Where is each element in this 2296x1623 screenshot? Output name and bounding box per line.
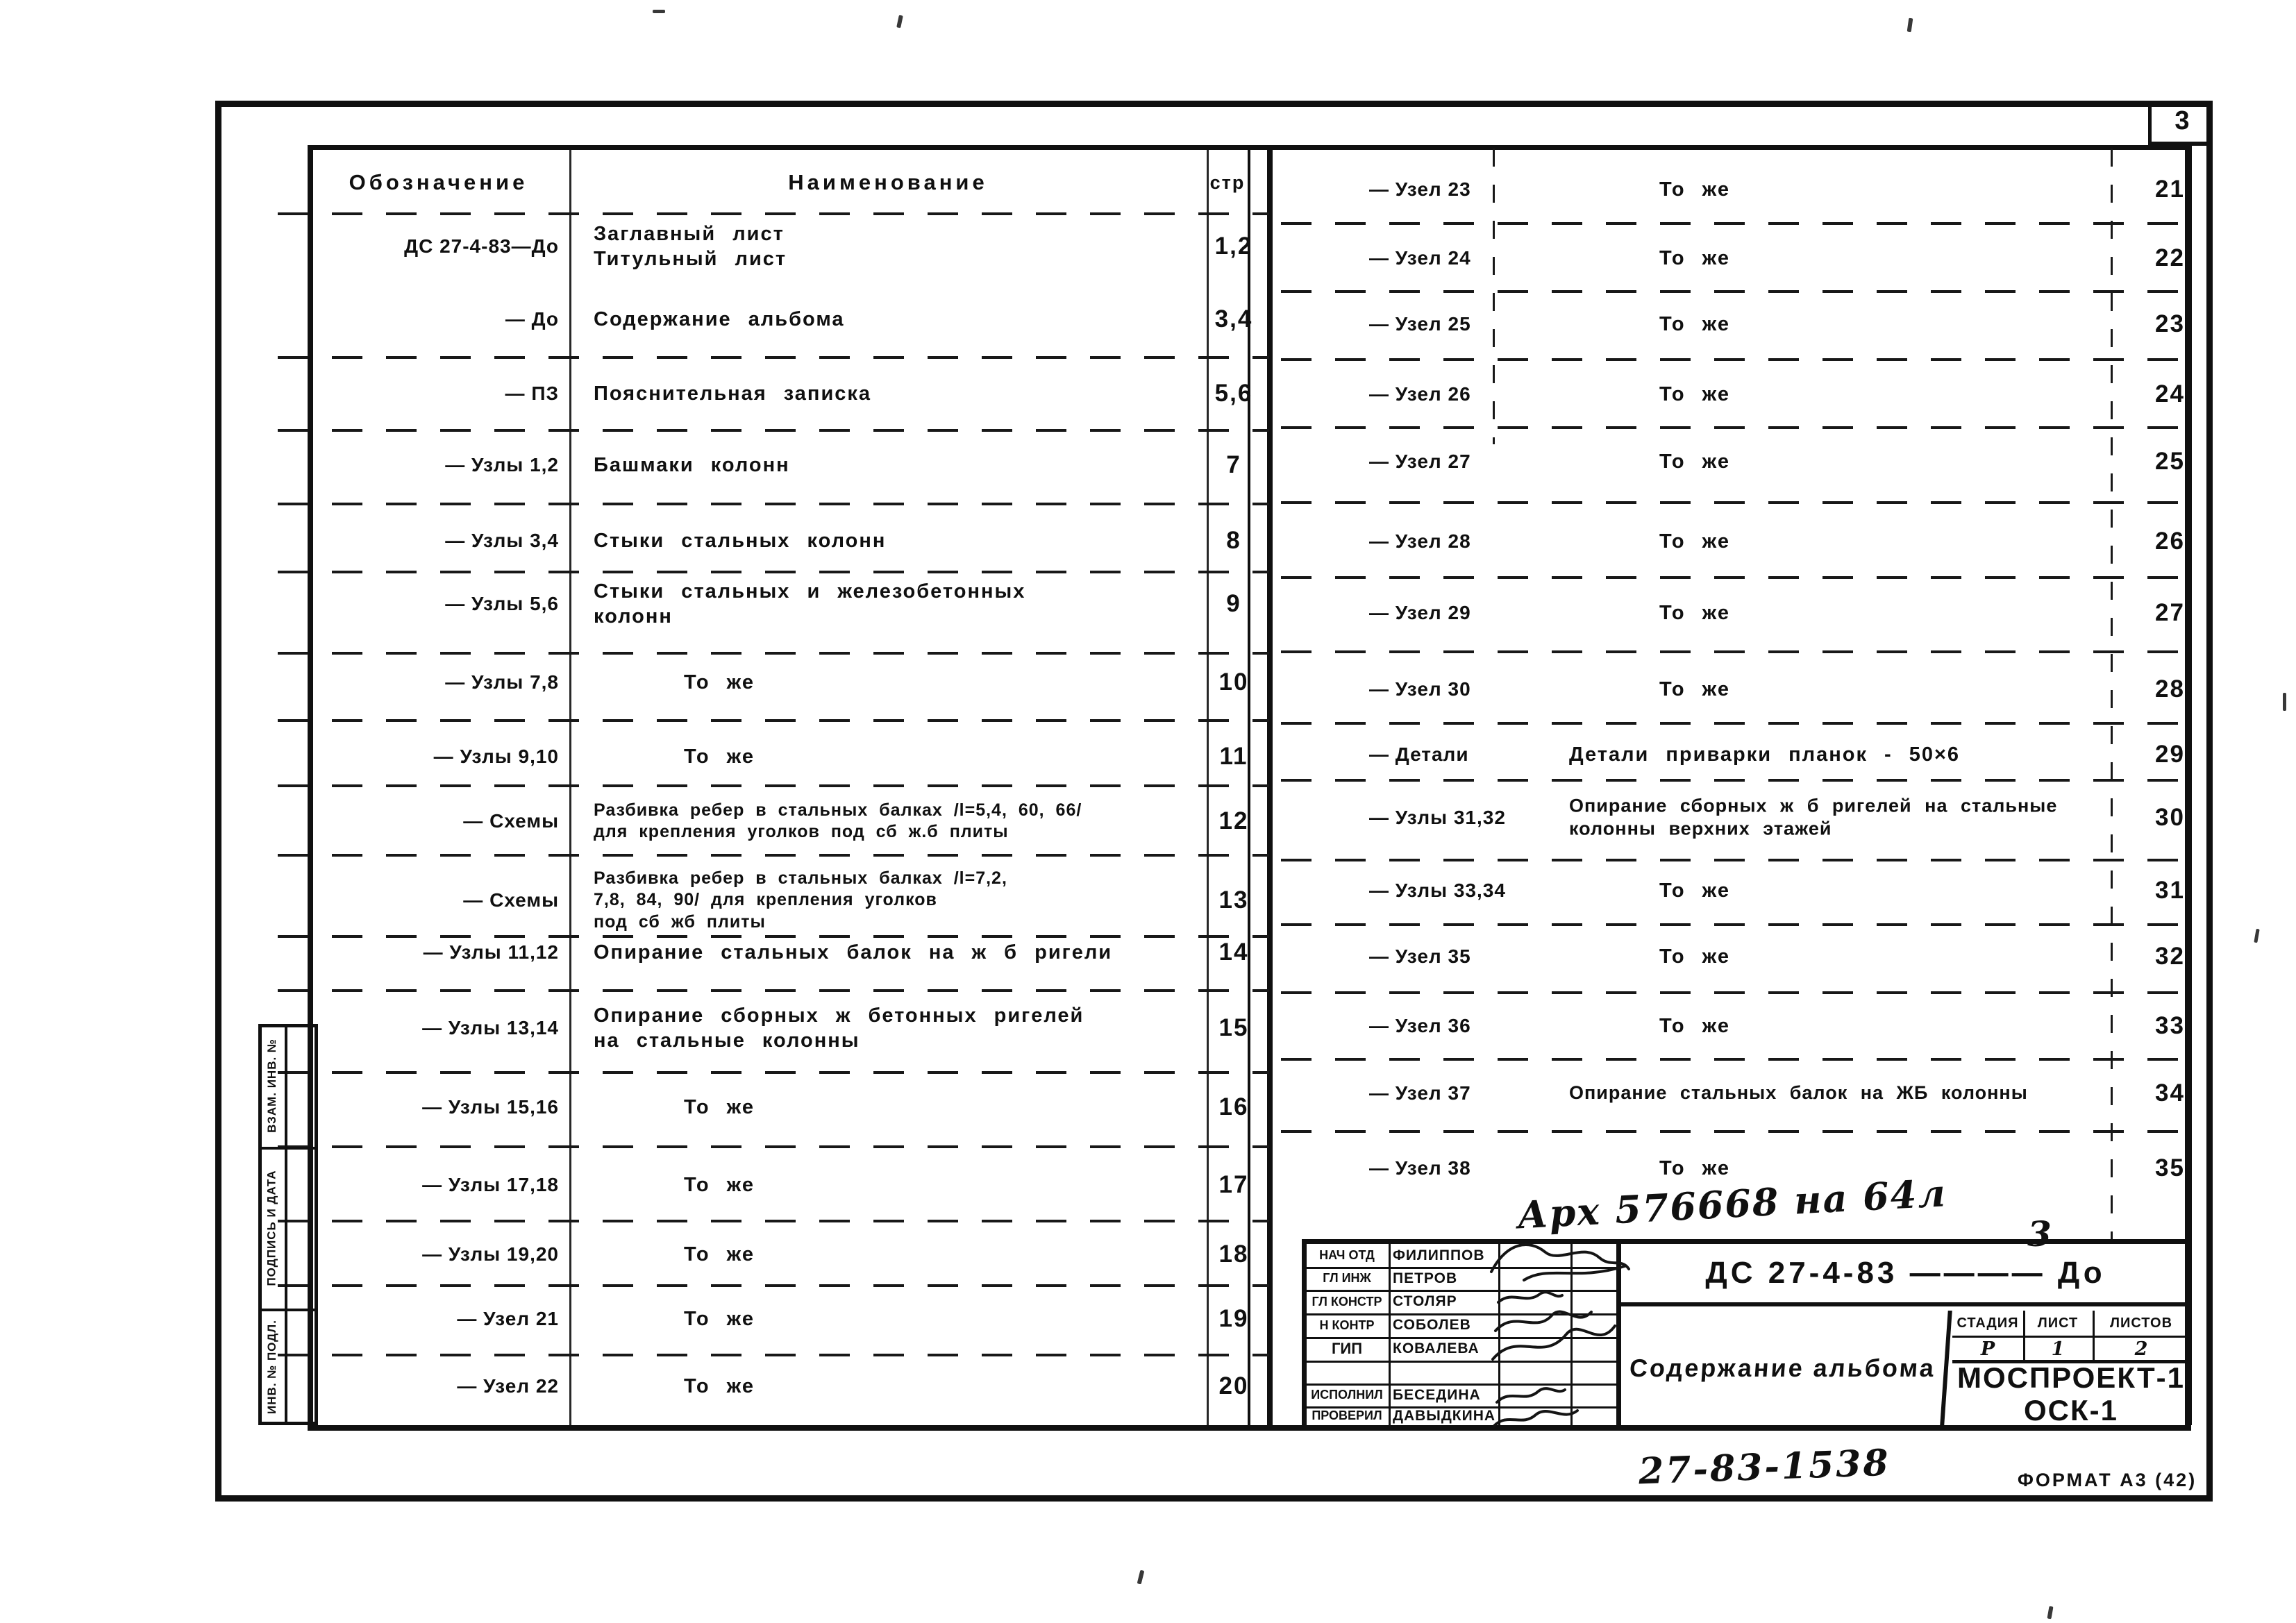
sheet-label: ЛИСТ: [2023, 1311, 2093, 1336]
scan-artifact: [1907, 18, 1913, 33]
stamp-title: Содержание альбома: [1617, 1311, 1952, 1425]
row-name: То же: [1569, 449, 2197, 474]
row-designation: — Детали: [1369, 743, 1598, 766]
row-name: Детали приварки планок - 50×6: [1569, 742, 2107, 767]
doc-number: 27-83-1538: [1638, 1442, 1891, 1493]
row-name: То же: [1569, 529, 2197, 554]
row-separator: [278, 784, 1269, 787]
row-designation: — Узлы 3,4: [316, 530, 559, 552]
row-page: 17: [1199, 1171, 1268, 1199]
row-designation: — Узел 25: [1369, 313, 1598, 335]
table-row: — Узлы 1,2 Башмаки колонн 7: [316, 441, 1267, 489]
row-separator: [278, 989, 1269, 992]
stamp-name: БЕСЕДИНА: [1393, 1384, 1497, 1406]
row-name: Стыки стальных и железобетонных колонн: [594, 579, 1212, 630]
row-designation: — Схемы: [316, 810, 559, 832]
row-page: 25: [2137, 448, 2203, 476]
stamp-designation: ДС 27-4-83 ———— До: [1621, 1244, 2190, 1306]
table-row: — Узлы 17,18 То же 17: [316, 1161, 1267, 1209]
table-row: — Узел 23 То же 21: [1291, 167, 2185, 212]
row-designation: — Узел 35: [1369, 945, 1598, 968]
table-row: — Узлы 19,20 То же 18: [316, 1230, 1267, 1279]
table-row: — Схемы Разбивка ребер в стальных балках…: [316, 791, 1267, 850]
row-separator: [1281, 576, 2185, 579]
row-page: 26: [2137, 528, 2203, 555]
row-name: То же: [1569, 944, 2197, 969]
table-row: — Узлы 31,32 Опирание сборных ж б ригеле…: [1291, 781, 2185, 854]
stamp-role: ГИП: [1307, 1337, 1387, 1361]
row-name: То же: [594, 1172, 1302, 1197]
row-separator: [278, 1071, 1269, 1074]
row-name: Опирание стальных балок на ж б ригели: [594, 940, 1212, 965]
row-separator: [1281, 290, 2185, 293]
table-row: ДС 27-4-83—До Заглавный лист Титульный л…: [316, 212, 1267, 281]
row-designation: — Узлы 19,20: [316, 1243, 559, 1265]
row-page: 14: [1199, 939, 1268, 966]
row-page: 19: [1199, 1305, 1268, 1333]
row-designation: — Узел 28: [1369, 530, 1598, 553]
row-page: 5,6: [1199, 380, 1268, 407]
row-separator: [278, 719, 1269, 722]
row-separator: [1281, 650, 2185, 653]
stamp-role: ПРОВЕРИЛ: [1307, 1406, 1387, 1425]
row-separator: [278, 1354, 1269, 1356]
row-page: 9: [1199, 590, 1268, 618]
signature-konstr: [1498, 1292, 1562, 1302]
table-row: — Узел 21 То же 19: [316, 1295, 1267, 1343]
stamp-role: [1307, 1361, 1387, 1384]
signature-ispolnil: [1497, 1388, 1565, 1402]
table-row: — Узлы 7,8 То же 10: [316, 658, 1267, 707]
row-name: Опирание сборных ж б ригелей на стальные…: [1569, 794, 2107, 841]
format-label: ФОРМАТ А3 (42): [2006, 1466, 2208, 1494]
row-name: То же: [1569, 246, 2197, 271]
row-page: 3,4: [1199, 305, 1268, 333]
row-designation: — Узел 29: [1369, 602, 1598, 624]
row-name: То же: [594, 744, 1302, 769]
row-separator: [1281, 426, 2185, 429]
side-strip-label: ИНВ. № ПОДЛ.: [265, 1320, 279, 1414]
table-row: — Узлы 3,4 Стыки стальных колонн 8: [316, 516, 1267, 565]
side-strip-label: ВЗАМ. ИНВ. №: [265, 1038, 279, 1133]
scan-artifact: [896, 15, 903, 28]
row-name: Заглавный лист Титульный лист: [594, 221, 1212, 272]
row-separator: [278, 854, 1269, 857]
row-page: 35: [2137, 1154, 2203, 1182]
signature-gip: [1493, 1326, 1615, 1359]
table-row: — До Содержание альбома 3,4: [316, 295, 1267, 344]
row-name: То же: [594, 670, 1302, 695]
row-name: Башмаки колонн: [594, 453, 1212, 478]
row-page: 13: [1199, 886, 1268, 914]
row-page: 30: [2137, 804, 2203, 832]
row-page: 7: [1199, 451, 1268, 479]
row-name: То же: [594, 1306, 1302, 1331]
table-row: — Узел 24 То же 22: [1291, 236, 2185, 280]
row-page: 12: [1199, 807, 1268, 835]
row-separator: [1281, 859, 2185, 861]
title-block-line: [2023, 1311, 2025, 1360]
row-name: То же: [1569, 382, 2197, 407]
row-name: Разбивка ребер в стальных балках /l=7,2,…: [594, 868, 1212, 933]
row-name: То же: [1569, 1014, 2197, 1038]
row-page: 34: [2137, 1079, 2203, 1107]
signatures: [1486, 1237, 1632, 1435]
row-page: 24: [2137, 380, 2203, 408]
title-block-line: [2093, 1311, 2095, 1360]
row-designation: — Узлы 33,34: [1369, 880, 1598, 902]
org-line-1: МОСПРОЕКТ-1: [1957, 1362, 2185, 1394]
header-page: стр: [1207, 162, 1248, 203]
row-page: 32: [2137, 943, 2203, 970]
signature-glinzh: [1524, 1266, 1625, 1280]
row-designation: — Узлы 1,2: [316, 454, 559, 476]
table-row: — ПЗ Пояснительная записка 5,6: [316, 369, 1267, 418]
row-page: 1,2: [1199, 233, 1268, 260]
sheets-value: 2: [2093, 1338, 2190, 1360]
row-designation: — Узел 30: [1369, 678, 1598, 700]
table-row: — Узлы 13,14 Опирание сборных ж бетонных…: [316, 998, 1267, 1057]
stamp-role: Н КОНТР: [1307, 1313, 1387, 1337]
stamp-name: КОВАЛЕВА: [1393, 1337, 1497, 1361]
row-designation: — ПЗ: [316, 382, 559, 405]
row-page: 10: [1199, 668, 1268, 696]
row-separator: [1281, 501, 2185, 504]
stage-value: Р: [1952, 1338, 2023, 1360]
row-name: Стыки стальных колонн: [594, 528, 1212, 553]
row-name: То же: [594, 1095, 1302, 1120]
row-page: 16: [1199, 1093, 1268, 1121]
row-page: 15: [1199, 1014, 1268, 1042]
row-separator: [1281, 991, 2185, 994]
stamp-role: НАЧ ОТД: [1307, 1244, 1387, 1267]
row-name: Содержание альбома: [594, 307, 1212, 332]
stamp-role: ГЛ КОНСТР: [1307, 1290, 1387, 1313]
row-separator: [1281, 1130, 2185, 1133]
row-designation: — Узел 36: [1369, 1015, 1598, 1037]
stage-label: СТАДИЯ: [1952, 1311, 2023, 1336]
scan-artifact: [2283, 693, 2286, 711]
row-name: Разбивка ребер в стальных балках /l=5,4,…: [594, 799, 1212, 843]
table-row: — Узлы 11,12 Опирание стальных балок на …: [316, 928, 1267, 977]
row-name: То же: [594, 1242, 1302, 1267]
row-name: То же: [594, 1374, 1302, 1399]
stamp-name: СОБОЛЕВ: [1393, 1313, 1497, 1337]
corner-page-number: 3: [2175, 106, 2189, 136]
row-designation: — До: [316, 308, 559, 330]
row-name: Опирание сборных ж бетонных ригелей на с…: [594, 1002, 1212, 1053]
row-designation: — Узлы 15,16: [316, 1096, 559, 1118]
table-row: — Узел 35 То же 32: [1291, 934, 2185, 979]
table-row: — Узлы 5,6 Стыки стальных и железобетонн…: [316, 573, 1267, 635]
side-strip-cell: ПОДПИСЬ И ДАТА: [258, 1147, 286, 1309]
scan-artifact: [2254, 929, 2259, 943]
drawing-sheet: 3 Обозначение Наименование стр ДС 27-4-8…: [0, 0, 2296, 1623]
header-name: Наименование: [569, 162, 1207, 203]
row-designation: — Узлы 7,8: [316, 671, 559, 693]
row-designation: — Узел 23: [1369, 178, 1598, 201]
table-row: — Узлы 15,16 То же 16: [316, 1083, 1267, 1132]
scan-artifact: [1137, 1570, 1145, 1585]
sheets-label: ЛИСТОВ: [2093, 1311, 2190, 1336]
row-page: 20: [1199, 1372, 1268, 1400]
row-separator: [1281, 1058, 2185, 1061]
table-row: — Узел 28 То же 26: [1291, 519, 2185, 564]
table-row: — Детали Детали приварки планок - 50×6 2…: [1291, 732, 2185, 777]
frame-line: [308, 1425, 2191, 1431]
row-name: Опирание стальных балок на ЖБ колонны: [1569, 1082, 2107, 1105]
row-separator: [278, 1145, 1269, 1148]
stamp-name: [1393, 1361, 1497, 1384]
row-page: 29: [2137, 741, 2203, 768]
scan-artifact: [2047, 1606, 2053, 1620]
corner-page-box: 3: [2148, 101, 2213, 146]
row-designation: — Узлы 31,32: [1369, 807, 1598, 829]
table-row: — Узел 25 То же 23: [1291, 302, 2185, 346]
row-page: 22: [2137, 244, 2203, 272]
row-page: 31: [2137, 877, 2203, 905]
row-designation: — Узел 38: [1369, 1157, 1598, 1179]
row-designation: — Узлы 11,12: [316, 941, 559, 964]
row-designation: — Узлы 9,10: [316, 746, 559, 768]
header-designation: Обозначение: [308, 162, 569, 203]
table-row: — Узлы 33,34 То же 31: [1291, 868, 2185, 913]
row-page: 11: [1199, 743, 1268, 771]
row-designation: — Узлы 13,14: [316, 1017, 559, 1039]
row-designation: — Узлы 5,6: [316, 593, 559, 615]
row-separator: [278, 503, 1269, 505]
table-row: — Узлы 9,10 То же 11: [316, 732, 1267, 781]
row-designation: — Узлы 17,18: [316, 1174, 559, 1196]
row-page: 8: [1199, 527, 1268, 555]
row-page: 28: [2137, 675, 2203, 703]
row-page: 23: [2137, 310, 2203, 338]
stamp-name: ДАВЫДКИНА: [1393, 1406, 1497, 1425]
side-strip-cell: ВЗАМ. ИНВ. №: [258, 1024, 286, 1147]
scan-artifact: [653, 10, 665, 13]
stamp-role: ГЛ ИНЖ: [1307, 1267, 1387, 1290]
stamp-name: ПЕТРОВ: [1393, 1267, 1497, 1290]
table-row: — Узел 30 То же 28: [1291, 667, 2185, 712]
table-row: — Узел 29 То же 27: [1291, 591, 2185, 635]
side-strip-cell: ИНВ. № ПОДЛ.: [258, 1309, 286, 1425]
table-line: [308, 145, 2185, 150]
row-separator: [1281, 358, 2185, 361]
stamp-role: ИСПОЛНИЛ: [1307, 1384, 1387, 1406]
org-line-2: ОСК-1: [2024, 1395, 2118, 1427]
side-strip-label: ПОДПИСЬ И ДАТА: [265, 1170, 279, 1286]
sheet-value: 1: [2023, 1338, 2093, 1360]
archive-note-extra: 3: [2027, 1213, 2052, 1254]
table-row: — Узел 27 То же 25: [1291, 439, 2185, 484]
title-block: НАЧ ОТД ФИЛИППОВ ГЛ ИНЖ ПЕТРОВ ГЛ КОНСТР…: [1302, 1239, 2185, 1425]
table-row: — Узел 22 То же 20: [316, 1362, 1267, 1411]
row-page: 21: [2137, 176, 2203, 203]
signature-proveril: [1494, 1411, 1577, 1426]
stamp-organization: МОСПРОЕКТ-1 ОСК-1: [1952, 1363, 2190, 1425]
title-block-line: [1389, 1244, 1391, 1425]
row-name: То же: [1569, 312, 2197, 337]
row-designation: — Схемы: [316, 889, 559, 911]
row-separator: [1281, 923, 2185, 926]
row-separator: [278, 356, 1269, 359]
row-name: То же: [1569, 677, 2197, 702]
row-separator: [278, 652, 1269, 655]
row-separator: [278, 1284, 1269, 1287]
row-page: 27: [2137, 599, 2203, 627]
row-name: Пояснительная записка: [594, 381, 1212, 406]
row-designation: — Узел 22: [316, 1375, 559, 1397]
table-row: — Узел 36 То же 33: [1291, 1004, 2185, 1048]
row-name: То же: [1569, 878, 2197, 903]
stamp-name: ФИЛИППОВ: [1393, 1244, 1497, 1267]
row-separator: [278, 429, 1269, 432]
table-row: — Схемы Разбивка ребер в стальных балках…: [316, 866, 1267, 935]
row-separator: [278, 1220, 1269, 1222]
row-designation: ДС 27-4-83—До: [316, 235, 559, 258]
signature-nachotd: [1491, 1245, 1629, 1272]
row-designation: — Узел 37: [1369, 1082, 1598, 1104]
row-separator: [1281, 222, 2185, 225]
row-designation: — Узел 27: [1369, 451, 1598, 473]
row-page: 33: [2137, 1012, 2203, 1040]
row-designation: — Узел 26: [1369, 383, 1598, 405]
row-page: 18: [1199, 1241, 1268, 1268]
row-designation: — Узел 21: [316, 1308, 559, 1330]
stamp-name: СТОЛЯР: [1393, 1290, 1497, 1313]
row-designation: — Узел 24: [1369, 247, 1598, 269]
table-row: — Узел 26 То же 24: [1291, 372, 2185, 417]
row-name: То же: [1569, 177, 2197, 202]
row-name: То же: [1569, 600, 2197, 625]
table-row: — Узел 37 Опирание стальных балок на ЖБ …: [1291, 1071, 2185, 1116]
row-separator: [1281, 722, 2185, 725]
